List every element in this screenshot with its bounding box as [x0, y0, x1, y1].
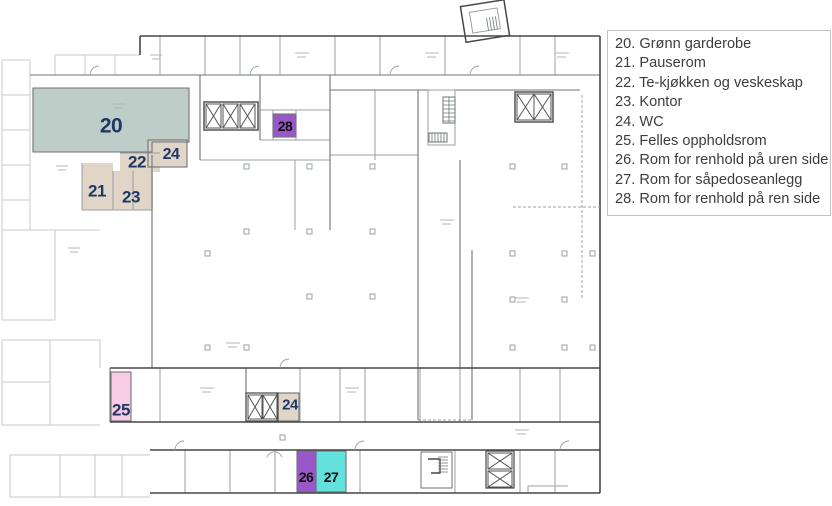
room-24-bottom-label: 24 — [282, 398, 298, 413]
room-25-label: 25 — [112, 402, 130, 419]
legend-item-28: 28. Rom for renhold på ren side — [615, 190, 824, 209]
legend-item-24: 24. WC — [615, 113, 824, 132]
legend-item-26: 26. Rom for renhold på uren side — [615, 151, 824, 170]
legend-item-23: 23. Kontor — [615, 93, 824, 112]
legend-item-20: 20. Grønn garderobe — [615, 35, 824, 54]
legend-item-25: 25. Felles oppholdsrom — [615, 132, 824, 151]
room-26-label: 26 — [299, 470, 314, 484]
room-number-labels: 20 21 22 23 24 24 25 26 27 28 — [0, 0, 607, 506]
room-28-label: 28 — [278, 119, 293, 133]
legend: 20. Grønn garderobe 21. Pauserom 22. Te-… — [607, 30, 831, 216]
room-21-label: 21 — [88, 183, 106, 200]
room-27-label: 27 — [324, 470, 339, 484]
room-20-label: 20 — [100, 116, 122, 137]
floor-plan: 20 21 22 23 24 24 25 26 27 28 — [0, 0, 607, 506]
legend-item-22: 22. Te-kjøkken og veskeskap — [615, 74, 824, 93]
room-24-top-label: 24 — [163, 147, 180, 163]
room-22-label: 22 — [128, 154, 146, 171]
legend-item-21: 21. Pauserom — [615, 54, 824, 73]
screenshot-root: 20 21 22 23 24 24 25 26 27 28 20. Grønn … — [0, 0, 832, 506]
room-23-label: 23 — [122, 189, 140, 206]
legend-item-27: 27. Rom for såpedoseanlegg — [615, 171, 824, 190]
